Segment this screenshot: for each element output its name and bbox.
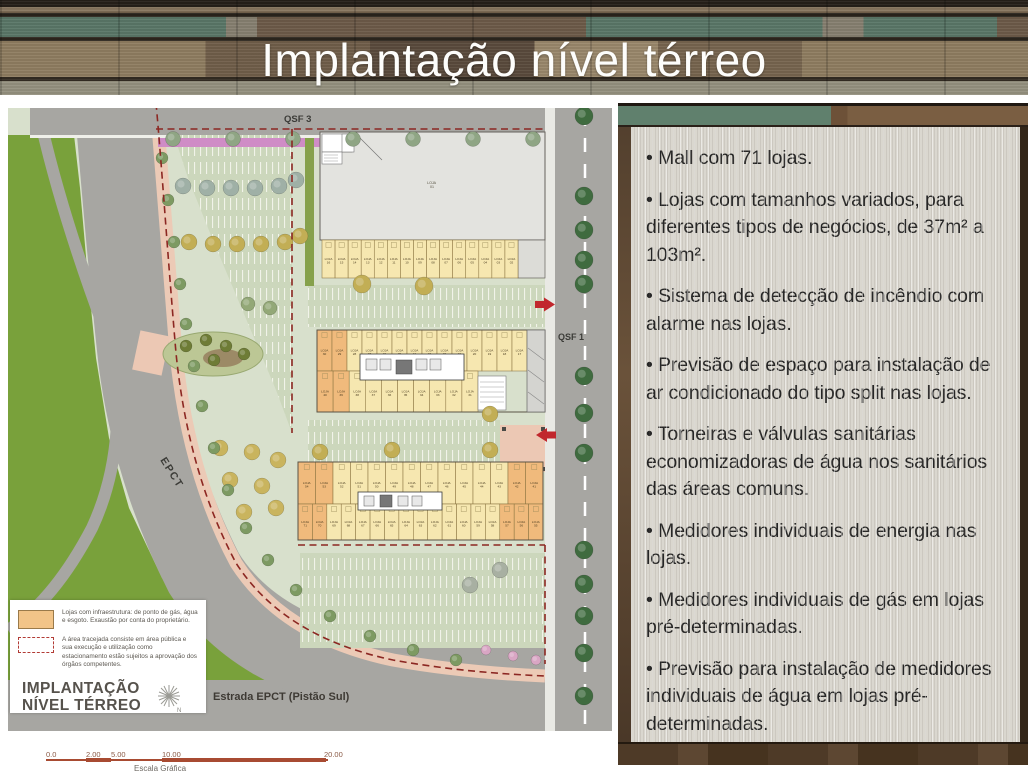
legend-box: Lojas com infraestrutura: de ponto de gá… xyxy=(10,600,206,713)
bullet-item: • Previsão de espaço para instalação de … xyxy=(646,352,1004,407)
legend-item-text: A área tracejada consiste em área públic… xyxy=(62,636,198,669)
bullet-item: • Mall com 71 lojas. xyxy=(646,145,1004,173)
label-qsf1: QSF 1 xyxy=(558,332,584,342)
block-c-core xyxy=(358,492,442,510)
label-estrada-epct: Estrada EPCT (Pistão Sul) xyxy=(213,691,350,703)
green-hedge xyxy=(305,138,314,286)
buildings-group: LOJA 01 LOJA16LOJA15LOJA14LOJA13LOJA12LO… xyxy=(298,132,545,540)
svg-text:N: N xyxy=(177,708,181,713)
page-title: Implantação nível térreo xyxy=(0,33,1028,87)
scale-tick-label: 0.0 xyxy=(46,750,56,759)
bullet-item: • Previsão para instalação de medidores … xyxy=(646,656,1004,739)
legend-item-dashed-area: A área tracejada consiste em área públic… xyxy=(18,636,198,669)
scale-tick-label: 5.00 xyxy=(111,750,126,759)
top-road xyxy=(30,108,612,135)
block-b-core xyxy=(360,354,464,380)
graphic-scale: 0.02.005.0010.0020.00 Escala Gráfica xyxy=(46,750,366,774)
bullet-item: • Lojas com tamanhos variados, para dife… xyxy=(646,187,1004,270)
escalator xyxy=(478,376,506,410)
label-qsf3: QSF 3 xyxy=(284,114,311,125)
features-paper: • Mall com 71 lojas.• Lojas com tamanhos… xyxy=(631,127,1020,742)
north-compass-icon: N xyxy=(155,683,183,713)
bullet-item: • Torneiras e válvulas sanitárias econom… xyxy=(646,421,1004,504)
bullet-item: • Medidores individuais de gás em lojas … xyxy=(646,587,1004,642)
dashed-area-swatch xyxy=(18,637,54,653)
wood-frame-right xyxy=(1020,127,1028,742)
shop-row-a: LOJA16LOJA15LOJA14LOJA13LOJA12LOJA11LOJA… xyxy=(322,240,518,278)
bullet-item: • Sistema de detecção de incêndio com al… xyxy=(646,283,1004,338)
bullet-item: • Medidores individuais de energia nas l… xyxy=(646,518,1004,573)
slide: { "slide": { "title": "Implantação nível… xyxy=(0,0,1028,774)
feature-list: • Mall com 71 lojas.• Lojas com tamanhos… xyxy=(646,145,1004,738)
loja-color-swatch xyxy=(18,610,54,629)
wood-frame-top xyxy=(618,103,1028,127)
plan-title: IMPLANTAÇÃO NÍVEL TÉRREO xyxy=(22,680,141,714)
scale-tick-label: 20.00 xyxy=(324,750,343,759)
site-plan: LOJA 01 LOJA16LOJA15LOJA14LOJA13LOJA12LO… xyxy=(8,108,612,731)
legend-item-lojas: Lojas com infraestrutura: de ponto de gá… xyxy=(18,609,198,629)
scale-caption: Escala Gráfica xyxy=(134,764,186,773)
parking-strip xyxy=(300,553,545,648)
title-bar: Implantação nível térreo xyxy=(0,0,1028,95)
features-panel: • Mall com 71 lojas.• Lojas com tamanhos… xyxy=(618,103,1028,765)
wood-frame-bottom xyxy=(618,742,1028,765)
legend-item-text: Lojas com infraestrutura: de ponto de gá… xyxy=(62,609,198,626)
wood-frame-left xyxy=(618,127,631,742)
